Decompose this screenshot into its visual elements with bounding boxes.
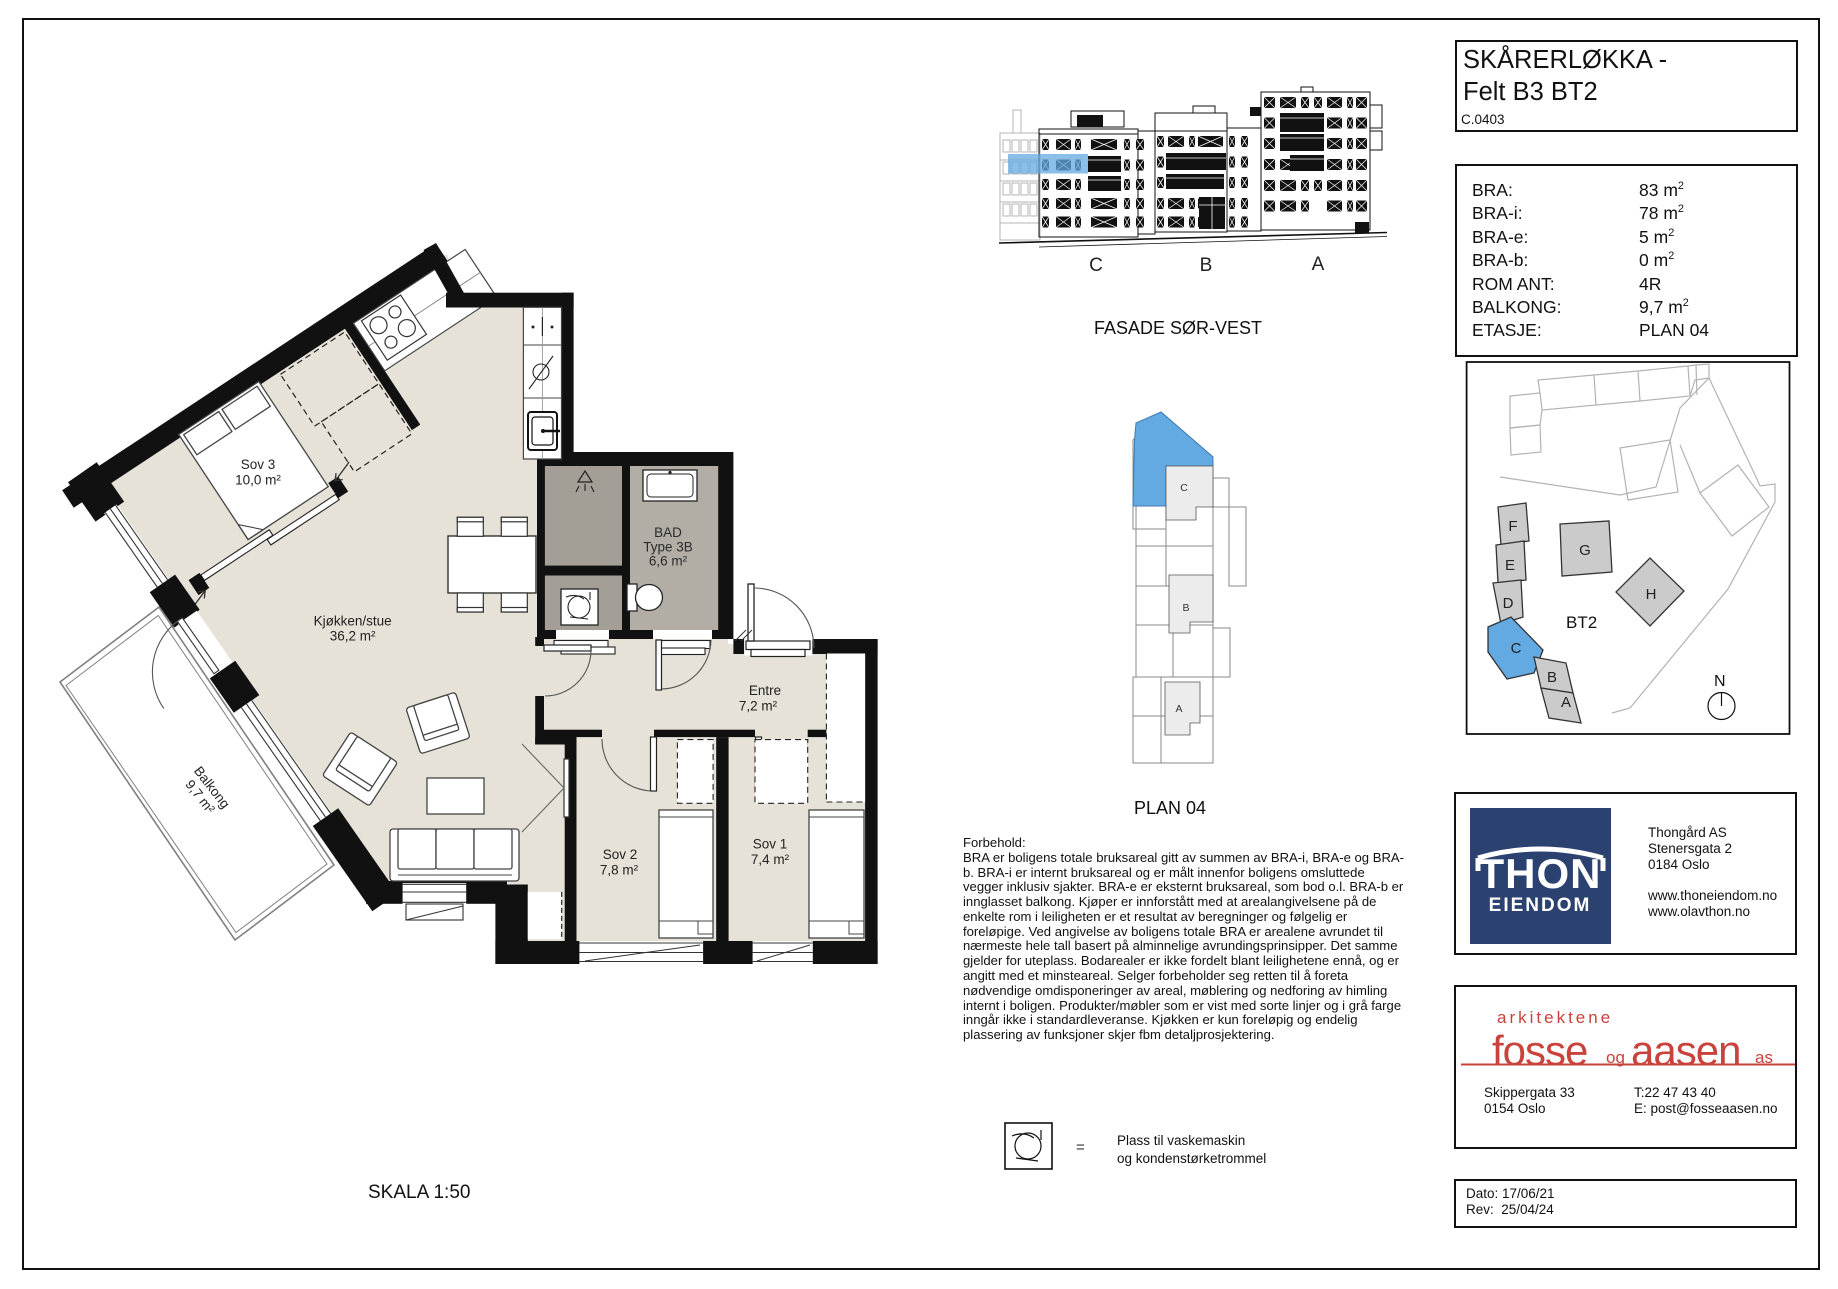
svg-text:aasen: aasen xyxy=(1631,1027,1740,1074)
svg-text:PLAN 04: PLAN 04 xyxy=(1134,798,1206,818)
svg-text:E: E xyxy=(1505,557,1515,574)
svg-text:FASADE SØR-VEST: FASADE SØR-VEST xyxy=(1094,318,1262,338)
svg-text:BAD: BAD xyxy=(654,525,682,540)
svg-text:BT2: BT2 xyxy=(1566,613,1597,632)
svg-text:N: N xyxy=(1714,673,1726,690)
svg-text:THON: THON xyxy=(1479,850,1602,897)
svg-text:A: A xyxy=(1561,694,1571,711)
svg-text:as: as xyxy=(1755,1048,1773,1067)
svg-text:SKALA 1:50: SKALA 1:50 xyxy=(368,1182,470,1203)
svg-text:Kjøkken/stue: Kjøkken/stue xyxy=(314,614,392,629)
svg-text:10,0 m²: 10,0 m² xyxy=(235,473,281,488)
svg-text:fosse: fosse xyxy=(1492,1027,1587,1074)
svg-text:og: og xyxy=(1606,1048,1625,1067)
svg-text:Type 3B: Type 3B xyxy=(643,540,693,555)
svg-text:Sov 1: Sov 1 xyxy=(753,837,788,852)
svg-text:7,4 m²: 7,4 m² xyxy=(751,852,790,867)
svg-text:Entre: Entre xyxy=(749,683,781,698)
svg-text:F: F xyxy=(1508,518,1517,535)
svg-text:36,2 m²: 36,2 m² xyxy=(330,629,376,644)
svg-text:7,8 m²: 7,8 m² xyxy=(600,863,639,878)
svg-text:6,6 m²: 6,6 m² xyxy=(649,554,688,569)
svg-text:og kondenstørketrommel: og kondenstørketrommel xyxy=(1117,1151,1266,1166)
svg-text:A: A xyxy=(1175,703,1182,715)
svg-text:H: H xyxy=(1646,586,1657,603)
svg-text:B: B xyxy=(1547,669,1557,686)
svg-text:C: C xyxy=(1089,255,1103,276)
svg-text:Plass til vaskemaskin: Plass til vaskemaskin xyxy=(1117,1133,1245,1148)
svg-text:7,2 m²: 7,2 m² xyxy=(739,699,778,714)
svg-text:Sov 3: Sov 3 xyxy=(241,457,276,472)
svg-text:G: G xyxy=(1579,542,1591,559)
svg-text:D: D xyxy=(1503,595,1514,612)
svg-text:Sov 2: Sov 2 xyxy=(603,847,638,862)
svg-text:C: C xyxy=(1511,640,1522,657)
svg-text:EIENDOM: EIENDOM xyxy=(1489,895,1592,916)
svg-text:A: A xyxy=(1312,254,1325,275)
svg-text:C: C xyxy=(1180,482,1188,494)
svg-text:B: B xyxy=(1200,255,1213,276)
svg-text:=: = xyxy=(1076,1139,1085,1156)
svg-text:B: B xyxy=(1182,602,1189,614)
